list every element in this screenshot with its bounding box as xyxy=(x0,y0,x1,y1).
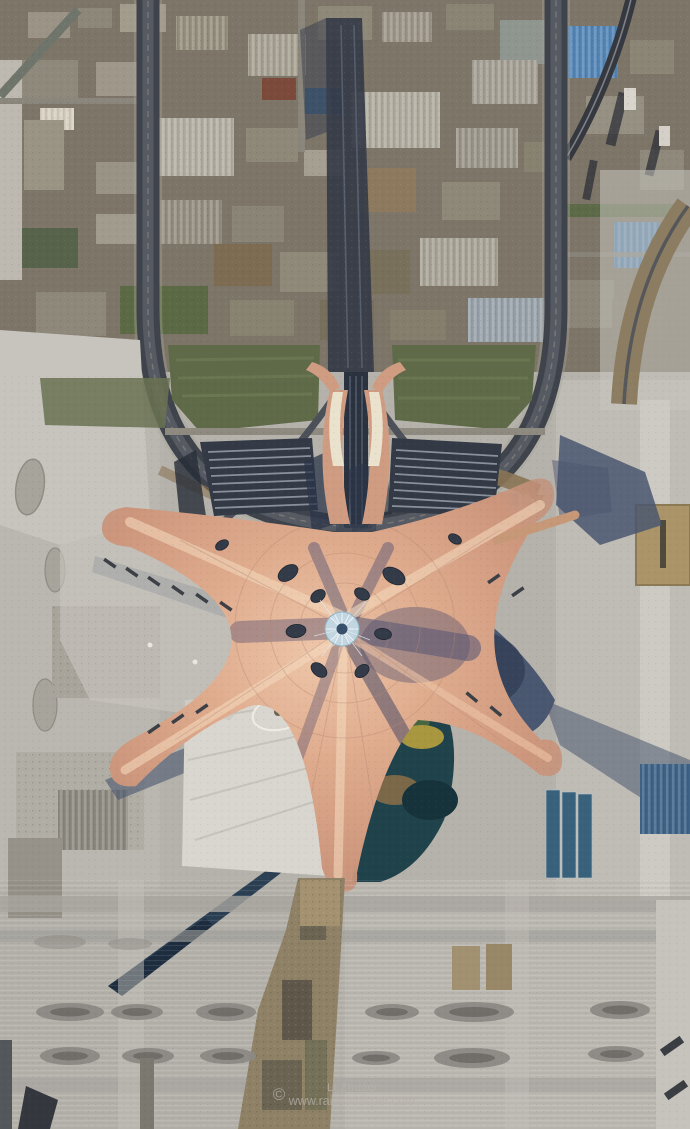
copyright-icon: © xyxy=(273,1085,286,1104)
aerial-photo-daxing-airport: © Li Zhuoqi www.rainywhisper.com xyxy=(0,0,690,1129)
watermark-line1: Li Zhuoqi xyxy=(327,1082,377,1094)
film-grain xyxy=(0,372,690,1129)
urban-construction-zone xyxy=(0,0,690,372)
watermark-line2: www.rainywhisper.com xyxy=(288,1094,415,1108)
